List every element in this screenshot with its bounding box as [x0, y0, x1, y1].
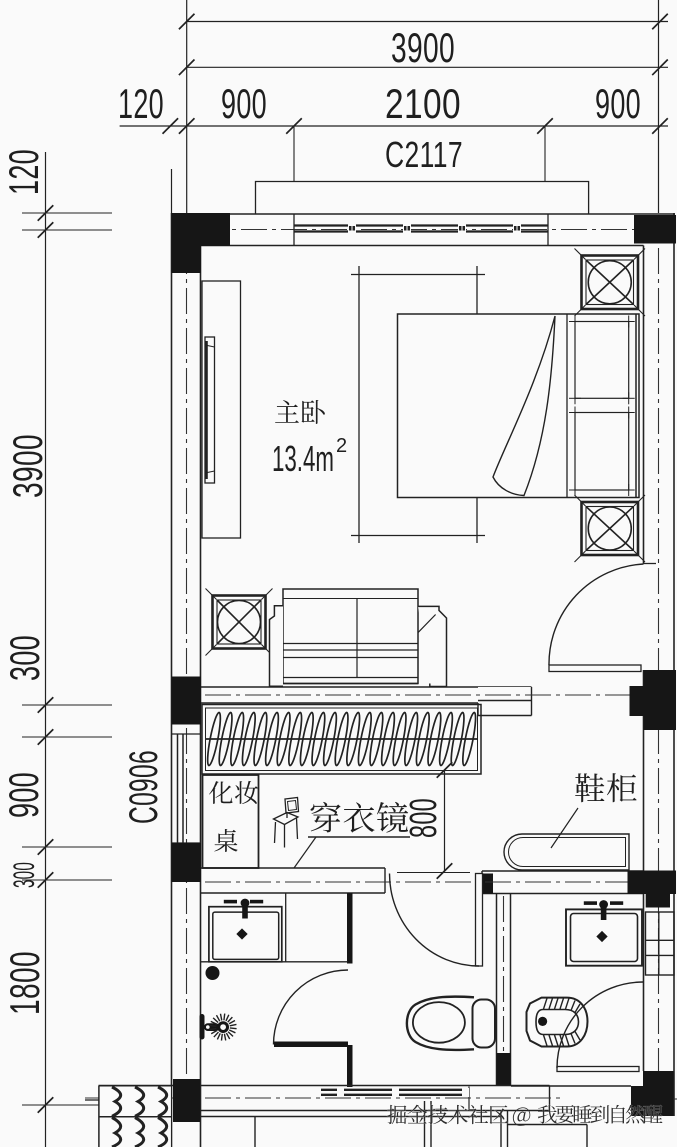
- svg-text:900: 900: [595, 80, 641, 127]
- svg-text:3900: 3900: [391, 24, 455, 71]
- svg-text:1800: 1800: [1, 951, 48, 1015]
- svg-text:120: 120: [0, 149, 47, 195]
- svg-text:2: 2: [336, 435, 347, 457]
- svg-text:3900: 3900: [4, 434, 51, 498]
- svg-text:300: 300: [1, 635, 48, 681]
- svg-text:13.4m: 13.4m: [272, 438, 334, 479]
- svg-text:300: 300: [8, 862, 41, 888]
- svg-text:900: 900: [0, 772, 47, 818]
- svg-text:2100: 2100: [385, 80, 461, 127]
- svg-text:C0906: C0906: [122, 750, 166, 824]
- svg-text:800: 800: [403, 798, 445, 838]
- svg-text:120: 120: [118, 80, 164, 127]
- svg-text:C2117: C2117: [385, 134, 463, 175]
- svg-text:900: 900: [221, 80, 267, 127]
